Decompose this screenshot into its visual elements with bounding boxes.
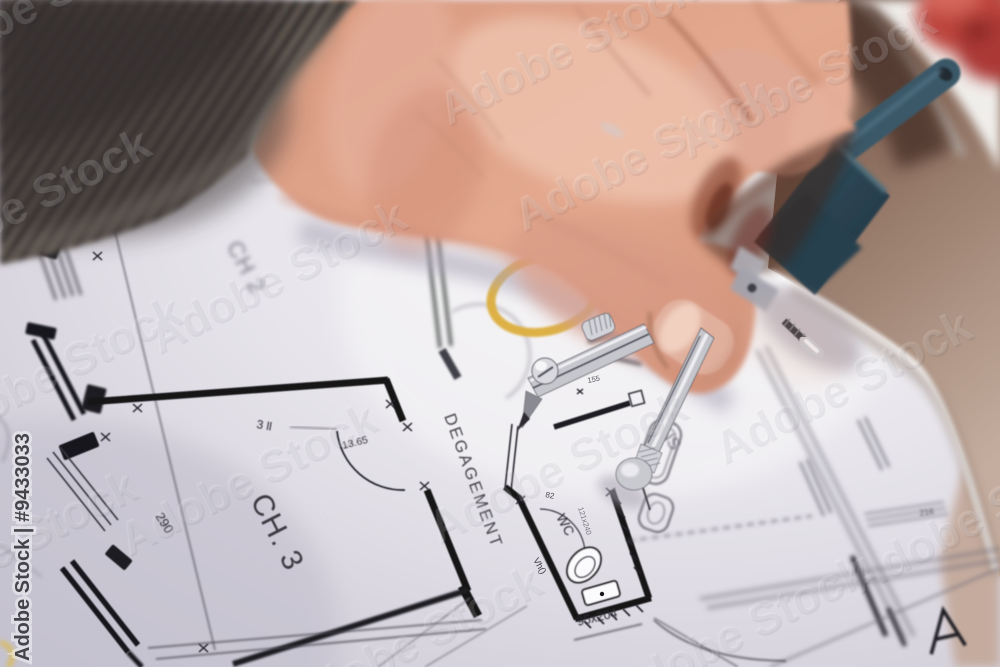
svg-text:Adobe Stock | #9433033: Adobe Stock | #9433033	[12, 433, 34, 661]
svg-text:3 ll: 3 ll	[255, 417, 273, 433]
